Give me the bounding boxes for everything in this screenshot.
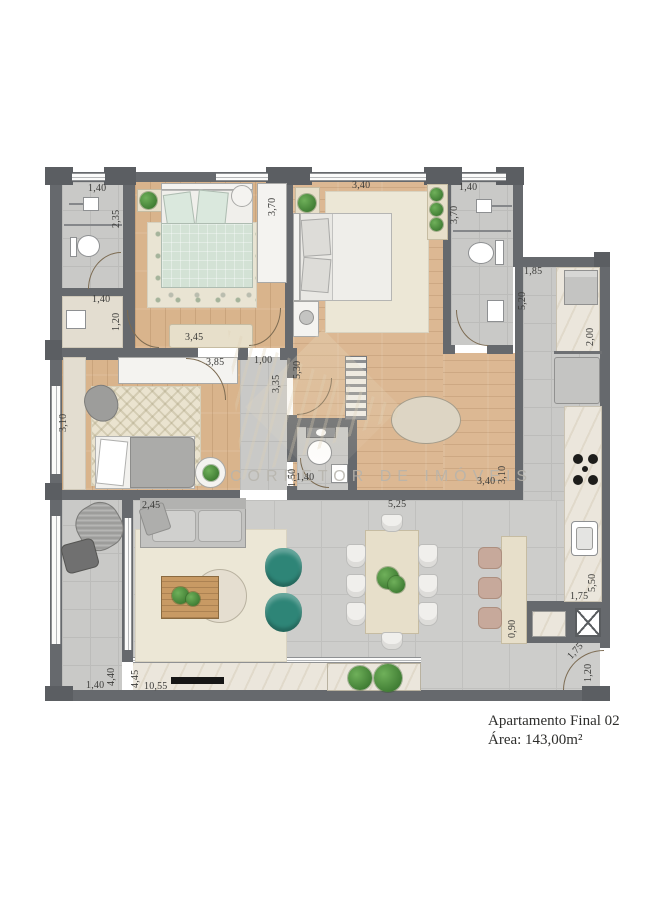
dining-chair — [418, 602, 438, 626]
plan-area: Área: 143,00m² — [488, 731, 620, 750]
dim-label: 1,75 — [570, 592, 588, 602]
plant-icon — [348, 666, 372, 690]
armchair-teal — [265, 548, 302, 587]
stove-burner-icon — [573, 475, 583, 485]
dim-label: 3,45 — [185, 333, 203, 343]
plant-icon — [374, 664, 402, 692]
grill-bench — [171, 677, 224, 684]
shower-fixture-icon — [83, 197, 99, 211]
plan-caption: Apartamento Final 02 Área: 143,00m² — [488, 712, 620, 750]
dim-label: 5,50 — [588, 574, 598, 592]
dim-label: 5,20 — [518, 292, 528, 310]
bed2-blanket — [161, 223, 253, 288]
master-duvet — [332, 214, 391, 300]
dining-chair — [346, 574, 366, 598]
dim-label: 3,85 — [206, 358, 224, 368]
pillow — [301, 257, 332, 293]
bar-stool — [478, 547, 502, 569]
plant-icon — [140, 192, 157, 209]
dim-label: 1,40 — [92, 295, 110, 305]
stove-knob-icon — [582, 466, 588, 472]
dim-label: 0,90 — [508, 620, 518, 638]
master-headboard — [293, 213, 300, 301]
plant-icon — [430, 218, 443, 231]
bar-stool — [478, 607, 502, 629]
dining-chair — [418, 544, 438, 568]
pier — [45, 686, 73, 701]
toilet-icon — [468, 242, 494, 264]
plant-icon — [186, 592, 200, 606]
dim-label: 2,00 — [586, 328, 596, 346]
dim-label: 4,45 — [131, 670, 141, 688]
ottoman-oval — [391, 396, 461, 444]
dim-label: 3,40 — [352, 181, 370, 191]
shower-arm — [69, 203, 84, 205]
dim-label: 1,20 — [112, 313, 122, 331]
kitchen-counter — [564, 406, 602, 602]
dim-label: 1,85 — [524, 267, 542, 277]
wall-living-top-b — [297, 490, 523, 500]
pier — [45, 167, 73, 185]
pier — [45, 340, 62, 360]
wall-bottom — [45, 690, 610, 701]
dim-label: 5,30 — [293, 361, 303, 379]
pier — [104, 167, 136, 185]
bed3-blanket — [130, 437, 195, 488]
sink-icon — [487, 300, 504, 322]
dim-label: 3,10 — [59, 414, 69, 432]
sink-icon — [66, 310, 86, 329]
dim-label: 2,45 — [142, 501, 160, 511]
wall-bath2-bottom-a — [443, 345, 455, 354]
shower-arm — [492, 205, 512, 207]
dining-chair — [418, 574, 438, 598]
utility-cabinet — [532, 611, 566, 637]
shower-fixture-icon — [476, 199, 492, 213]
counter-edge — [554, 351, 602, 354]
pier — [424, 167, 462, 185]
plant-icon — [203, 465, 219, 481]
dim-label: 3,10 — [498, 466, 508, 484]
shower-divider — [453, 230, 511, 232]
dining-chair — [381, 632, 403, 650]
sofa-cushion — [198, 510, 242, 542]
washing-machine — [564, 270, 598, 305]
wall-bath2-bottom-b — [487, 345, 513, 354]
dim-label: 4,40 — [107, 668, 117, 686]
dim-label: 1,20 — [584, 664, 594, 682]
toilet-tank — [70, 237, 77, 257]
wall-right-bath2 — [513, 172, 523, 267]
kitchen-sink-basin — [576, 527, 593, 550]
window-bath1 — [72, 173, 105, 181]
pillow — [301, 218, 332, 257]
plant-icon — [298, 194, 316, 212]
dim-label: 3,40 — [477, 477, 495, 487]
plant-icon — [388, 576, 405, 593]
dim-label: 3,70 — [450, 206, 460, 224]
lamp-icon — [299, 310, 314, 325]
stove-burner-icon — [573, 454, 583, 464]
dim-label: 1,40 — [459, 183, 477, 193]
stove-burner-icon — [588, 475, 598, 485]
plan-title: Apartamento Final 02 — [488, 712, 620, 731]
dim-label: 5,25 — [388, 500, 406, 510]
stool — [231, 185, 253, 207]
wall-hall-suite-c — [287, 486, 297, 500]
armchair-teal — [265, 593, 302, 632]
window-living-balcony — [124, 518, 132, 650]
floorplan-canvas: CORRETOR DE IMÓVEIS 1,40 2,35 1,40 1,20 … — [0, 0, 660, 899]
pier — [594, 252, 610, 267]
window-balcony-left — [51, 516, 61, 644]
dining-chair — [346, 544, 366, 568]
duct-shaft-icon — [575, 608, 601, 637]
dim-label: 1,00 — [254, 356, 272, 366]
dim-label: 3,35 — [272, 375, 282, 393]
toilet-tank — [495, 240, 504, 265]
window-bedroom2 — [216, 173, 268, 181]
plant-icon — [430, 203, 443, 216]
dim-label: 1,40 — [88, 184, 106, 194]
stove-burner-icon — [588, 454, 598, 464]
dining-chair — [381, 514, 403, 532]
dim-label: 3,70 — [268, 198, 278, 216]
plant-icon — [430, 188, 443, 201]
pier — [45, 483, 62, 500]
dining-chair — [346, 602, 366, 626]
watermark-text: CORRETOR DE IMÓVEIS — [230, 468, 560, 486]
dim-label: 1,40 — [296, 473, 314, 483]
window-bath2 — [462, 173, 506, 181]
dim-label: 2,35 — [112, 210, 122, 228]
dim-label: 1,40 — [86, 681, 104, 691]
toilet-icon — [77, 235, 100, 257]
fridge — [554, 357, 600, 404]
pillow — [96, 439, 129, 487]
dim-label: 10,55 — [144, 682, 168, 692]
bar-stool — [478, 577, 502, 599]
